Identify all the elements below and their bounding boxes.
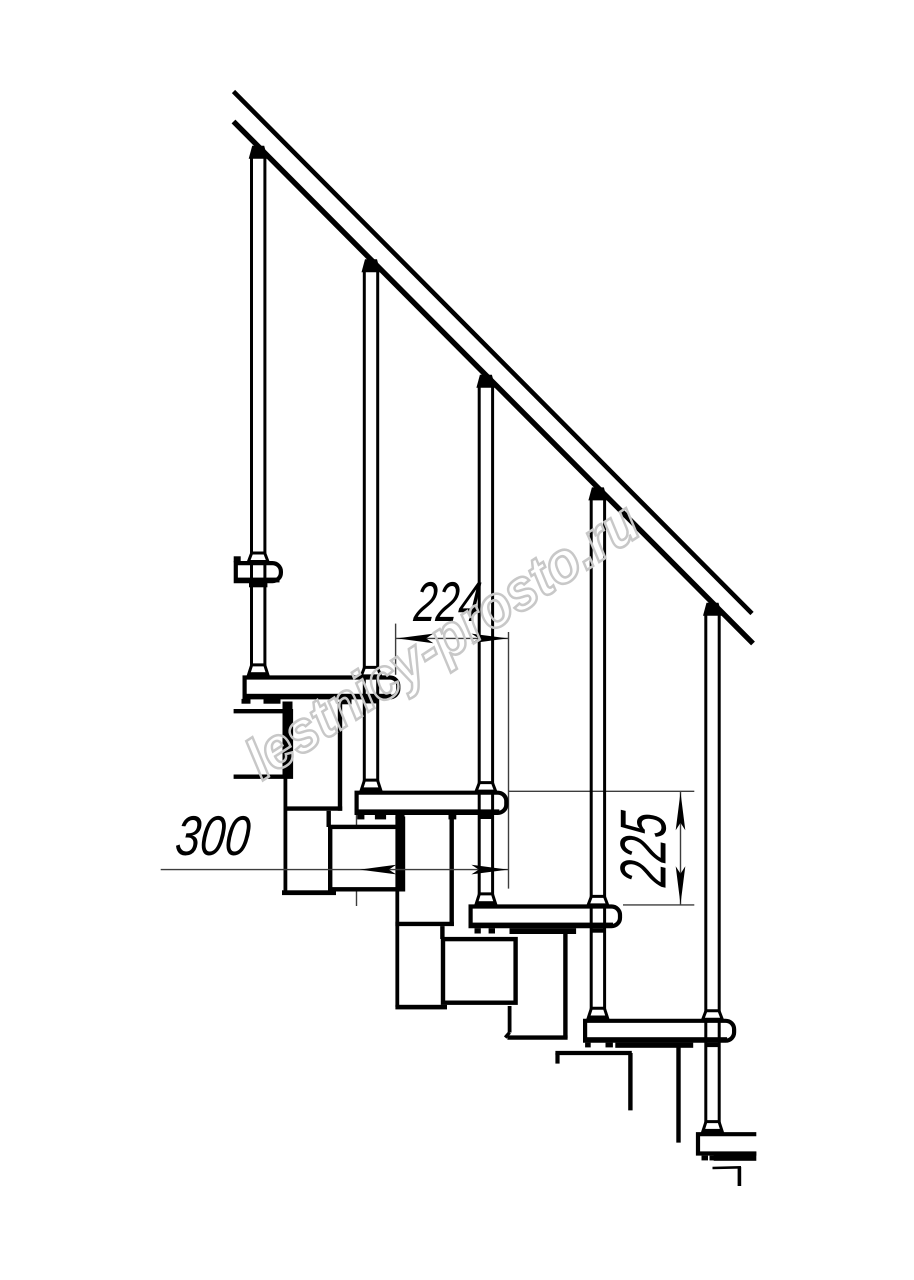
svg-text:lestnicy-prosto.ru: lestnicy-prosto.ru	[234, 490, 651, 792]
svg-text:225: 225	[607, 808, 680, 890]
svg-text:300: 300	[173, 804, 254, 867]
